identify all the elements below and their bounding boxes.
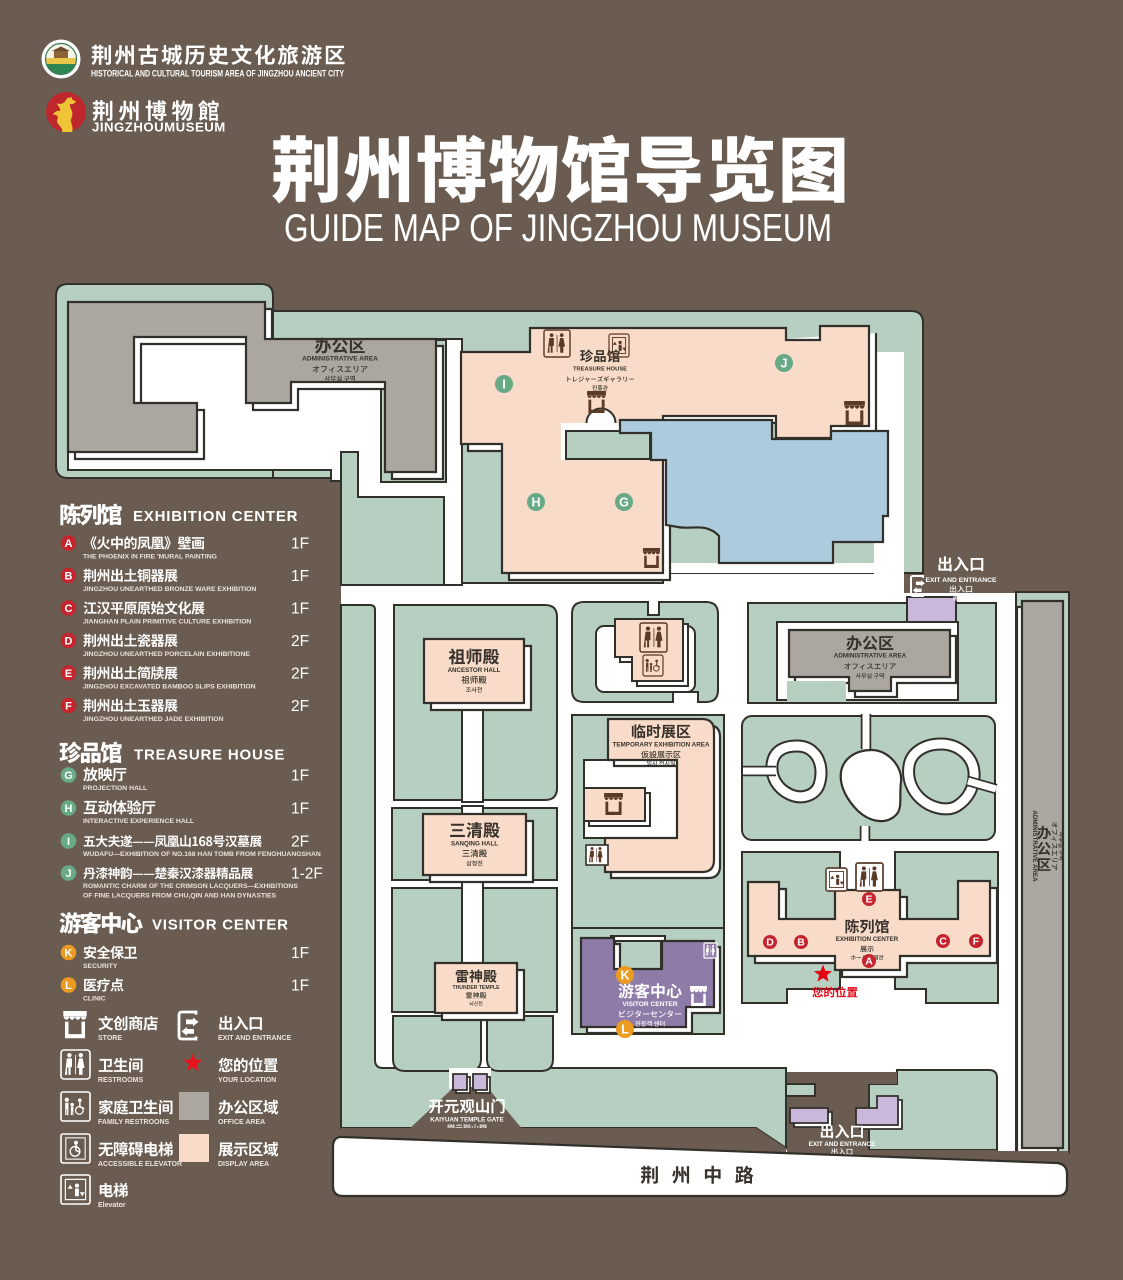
svg-text:YOUR LOCATION: YOUR LOCATION (218, 1077, 276, 1084)
svg-text:H: H (531, 495, 540, 509)
svg-text:TREASURE HOUSE: TREASURE HOUSE (573, 367, 627, 373)
svg-text:J: J (65, 868, 71, 880)
svg-text:J: J (781, 356, 788, 370)
svg-text:A: A (865, 956, 873, 968)
svg-text:STORE: STORE (98, 1035, 122, 1042)
svg-text:SECURITY: SECURITY (83, 963, 118, 970)
svg-text:D: D (766, 937, 774, 949)
svg-text:1F: 1F (291, 768, 309, 785)
svg-text:ANCESTOR HALL: ANCESTOR HALL (448, 667, 501, 674)
svg-text:G: G (619, 495, 629, 509)
svg-text:2F: 2F (291, 834, 309, 851)
svg-text:OF FINE LACQUERS FROM CHU,QIN: OF FINE LACQUERS FROM CHU,QIN AND HAN DY… (83, 893, 277, 900)
svg-text:L: L (65, 980, 72, 992)
svg-text:VISITOR CENTER: VISITOR CENTER (152, 917, 289, 934)
svg-text:FAMILY RESTROONS: FAMILY RESTROONS (98, 1119, 170, 1126)
svg-text:ADMINISTRATIVE AREA: ADMINISTRATIVE AREA (834, 653, 907, 660)
svg-text:K: K (620, 968, 629, 982)
svg-text:JIANGHAN PLAIN PRIMITIVE CULTU: JIANGHAN PLAIN PRIMITIVE CULTURE EXHIBIT… (83, 619, 251, 626)
svg-text:C: C (939, 936, 947, 948)
svg-text:THUNDER TEMPLE: THUNDER TEMPLE (453, 985, 501, 991)
svg-text:TEMPORARY EXHIBITION AREA: TEMPORARY EXHIBITION AREA (612, 742, 709, 749)
svg-text:C: C (65, 603, 73, 615)
svg-text:1F: 1F (291, 601, 309, 618)
svg-text:F: F (65, 700, 72, 712)
svg-text:1-2F: 1-2F (291, 866, 323, 883)
svg-text:EXHIBITION CENTER: EXHIBITION CENTER (836, 936, 899, 943)
svg-text:EXHIBITION CENTER: EXHIBITION CENTER (133, 508, 298, 525)
svg-text:ADMINISTRATIVE AREA: ADMINISTRATIVE AREA (1031, 810, 1038, 882)
svg-text:ROMANTIC CHARM OF THE CRIMSON: ROMANTIC CHARM OF THE CRIMSON LACQUERS—E… (83, 883, 298, 890)
svg-text:PROJECTION HALL: PROJECTION HALL (83, 785, 147, 792)
svg-text:I: I (502, 377, 505, 391)
svg-text:VISITOR CENTER: VISITOR CENTER (622, 1001, 677, 1008)
svg-text:A: A (65, 538, 73, 550)
svg-text:ADMINISTRATIVE AREA: ADMINISTRATIVE AREA (302, 356, 378, 363)
svg-text:GUIDE MAP OF JINGZHOU MUSEUM: GUIDE MAP OF JINGZHOU MUSEUM (284, 207, 832, 250)
svg-text:F: F (973, 936, 980, 948)
svg-text:HISTORICAL AND CULTURAL TOURIS: HISTORICAL AND CULTURAL TOURISM AREA OF … (91, 68, 345, 79)
svg-text:JINGZHOU UNEARTHED JADE EXHIBI: JINGZHOU UNEARTHED JADE EXHIBITION (83, 716, 224, 723)
svg-text:I: I (67, 836, 70, 848)
svg-text:H: H (65, 803, 73, 815)
svg-text:TREASURE HOUSE: TREASURE HOUSE (134, 747, 285, 764)
svg-text:EXIT AND ENTRANCE: EXIT AND ENTRANCE (218, 1035, 292, 1042)
svg-text:K: K (65, 947, 73, 959)
svg-text:JINGZHOU UNEARTHED PORCELAIN E: JINGZHOU UNEARTHED PORCELAIN EXHIBITIONE (83, 651, 250, 658)
svg-text:KAIYUAN TEMPLE GATE: KAIYUAN TEMPLE GATE (430, 1117, 503, 1124)
svg-text:L: L (621, 1022, 629, 1036)
svg-text:JINGZHOU UNEARTHED BRONZE WARE: JINGZHOU UNEARTHED BRONZE WARE EXHIBITIO… (83, 586, 256, 593)
svg-text:DISPLAY AREA: DISPLAY AREA (218, 1161, 269, 1168)
svg-text:SANQING HALL: SANQING HALL (451, 841, 498, 848)
svg-text:E: E (65, 668, 72, 680)
svg-text:D: D (65, 635, 73, 647)
svg-text:1F: 1F (291, 536, 309, 553)
svg-text:1F: 1F (291, 945, 309, 962)
svg-text:G: G (64, 770, 73, 782)
svg-text:WUDAFU—EXHIBITION OF NO.168 HA: WUDAFU—EXHIBITION OF NO.168 HAN TOMB FRO… (83, 851, 321, 858)
svg-text:THE PHOENIX IN FIRE 'MURAL PAI: THE PHOENIX IN FIRE 'MURAL PAINTING (83, 554, 217, 561)
svg-text:1F: 1F (291, 568, 309, 585)
svg-text:2F: 2F (291, 698, 309, 715)
svg-text:EXIT AND ENTRANCE: EXIT AND ENTRANCE (925, 577, 997, 584)
svg-text:JINGZHOUMUSEUM: JINGZHOUMUSEUM (92, 120, 226, 135)
svg-text:B: B (797, 937, 805, 949)
svg-text:INTERACTIVE EXPERIENCE HALL: INTERACTIVE EXPERIENCE HALL (83, 818, 194, 825)
svg-text:OFFICE AREA: OFFICE AREA (218, 1119, 265, 1126)
svg-text:EXIT AND ENTRANCE: EXIT AND ENTRANCE (809, 1141, 877, 1148)
svg-text:JINGZHOU EXCAVATED BAMBOO SLIP: JINGZHOU EXCAVATED BAMBOO SLIPS EXHIBITI… (83, 684, 256, 691)
svg-text:1F: 1F (291, 801, 309, 818)
svg-text:1F: 1F (291, 978, 309, 995)
svg-text:2F: 2F (291, 666, 309, 683)
svg-text:RESTROOMS: RESTROOMS (98, 1077, 143, 1084)
svg-text:E: E (865, 894, 872, 906)
svg-text:CLINIC: CLINIC (83, 996, 106, 1003)
svg-text:ACCESSIBLE ELEVATOR: ACCESSIBLE ELEVATOR (98, 1161, 182, 1168)
svg-text:2F: 2F (291, 633, 309, 650)
svg-text:B: B (65, 570, 73, 582)
svg-text:Elevator: Elevator (98, 1202, 126, 1209)
